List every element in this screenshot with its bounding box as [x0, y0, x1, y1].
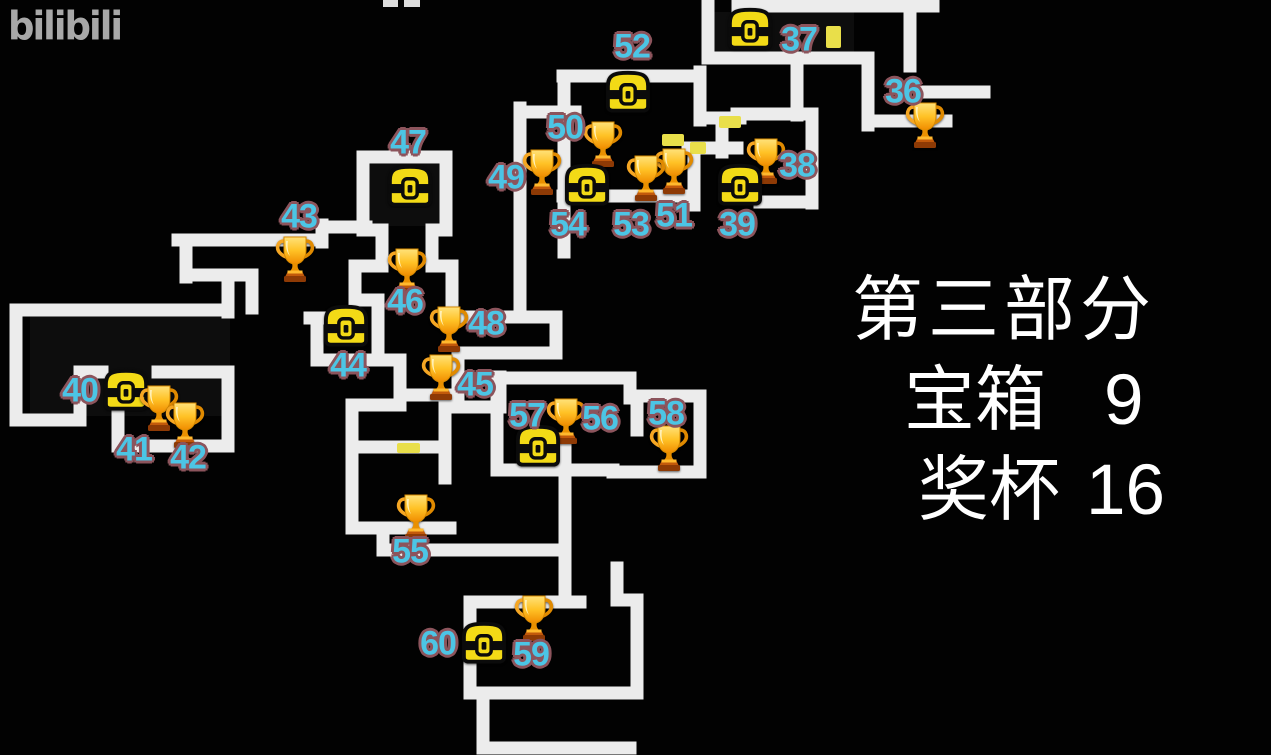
marker-label: 54 [550, 206, 586, 245]
stat-row-trophies: 奖杯 16 [918, 446, 1165, 536]
trophy-icon [626, 152, 666, 202]
stat-row-chests: 宝箱 9 [904, 356, 1165, 446]
door-marker [826, 26, 841, 48]
marker-label: 60 [420, 625, 456, 664]
marker-label: 46 [387, 283, 423, 322]
marker-label: 42 [170, 439, 206, 478]
marker-label: 38 [779, 147, 815, 186]
marker-label: 55 [392, 533, 428, 572]
map-stage: 36 37 38 39 40 41 42 [0, 0, 1271, 755]
marker-label: 56 [582, 400, 618, 439]
marker-label: 45 [457, 366, 493, 405]
trophy-icon [583, 118, 623, 168]
door-marker [719, 116, 741, 128]
chest-icon [321, 303, 371, 347]
marker-label: 43 [281, 198, 317, 237]
stats-panel: 第三部分 宝箱 9 奖杯 16 [852, 266, 1165, 536]
marker-label: 47 [390, 124, 426, 163]
marker-label: 58 [648, 395, 684, 434]
marker-label: 52 [614, 28, 650, 67]
marker-label: 57 [509, 397, 545, 436]
marker-label: 48 [468, 305, 504, 344]
top-edge-artifact [404, 0, 420, 7]
panel-title: 第三部分 [852, 266, 1165, 356]
marker-label: 37 [781, 21, 817, 60]
bilibili-logo: bilibili [8, 4, 121, 49]
chest-stat-value: 9 [1104, 356, 1144, 446]
trophy-icon [522, 146, 562, 196]
trophy-stat-label: 奖杯 [918, 446, 1060, 536]
chest-icon [459, 620, 509, 664]
marker-label: 41 [116, 431, 152, 470]
chest-stat-label: 宝箱 [904, 356, 1046, 446]
chest-icon [603, 69, 653, 113]
chest-icon [715, 162, 765, 206]
marker-label: 51 [656, 197, 692, 236]
marker-label: 50 [547, 109, 583, 148]
chest-icon [385, 163, 435, 207]
chest-icon [725, 6, 775, 50]
marker-label: 36 [885, 73, 921, 112]
marker-label: 40 [62, 372, 98, 411]
trophy-icon [275, 233, 315, 283]
chest-icon [562, 162, 612, 206]
trophy-stat-value: 16 [1086, 446, 1165, 536]
marker-label: 44 [330, 347, 366, 386]
trophy-icon [514, 592, 554, 642]
trophy-icon [429, 303, 469, 353]
top-edge-artifact [383, 0, 398, 7]
marker-label: 59 [513, 636, 549, 675]
trophy-icon [421, 351, 461, 401]
marker-label: 49 [488, 159, 524, 198]
marker-label: 39 [719, 206, 755, 245]
marker-label: 53 [613, 206, 649, 245]
door-marker [397, 443, 420, 453]
